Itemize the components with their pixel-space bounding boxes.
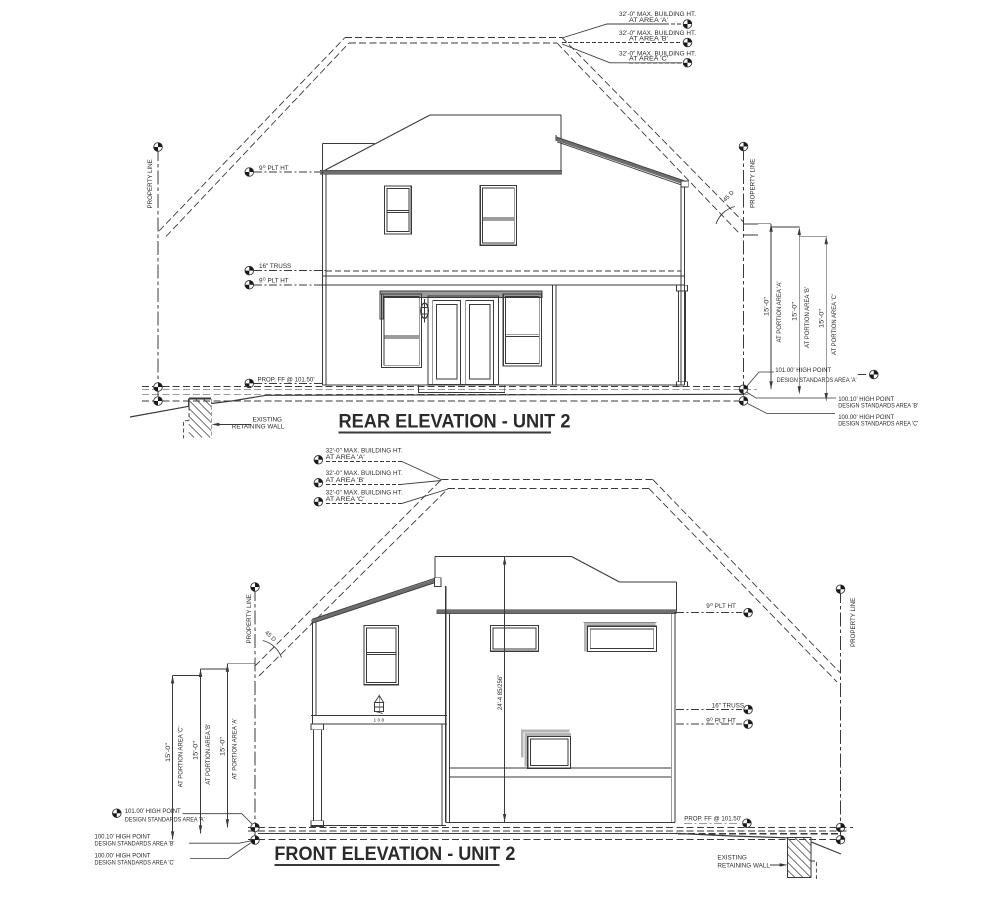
svg-text:DESIGN STANDARDS AREA 'B': DESIGN STANDARDS AREA 'B' (838, 402, 918, 409)
svg-text:RETAINING WALL: RETAINING WALL (717, 863, 770, 870)
svg-text:PLT HT: PLT HT (268, 278, 289, 285)
svg-text:AT AREA 'C': AT AREA 'C' (326, 496, 365, 503)
svg-text:16" TRUSS: 16" TRUSS (712, 703, 744, 710)
svg-text:AT AREA 'B': AT AREA 'B' (629, 35, 668, 42)
svg-text:15'-0": 15'-0" (818, 309, 825, 328)
svg-text:AT PORTION AREA 'B': AT PORTION AREA 'B' (205, 724, 212, 785)
svg-text:DESIGN STANDARDS AREA 'A': DESIGN STANDARDS AREA 'A' (777, 377, 857, 384)
svg-text:101.00' HIGH POINT: 101.00' HIGH POINT (125, 808, 181, 815)
svg-text:AT PORTION AREA 'C': AT PORTION AREA 'C' (831, 294, 838, 355)
svg-text:AT PORTION AREA 'A': AT PORTION AREA 'A' (776, 282, 783, 343)
svg-text:PLT HT: PLT HT (268, 165, 289, 172)
svg-text:15'-0": 15'-0" (792, 302, 799, 321)
svg-text:0: 0 (710, 716, 713, 721)
svg-text:AT AREA 'A': AT AREA 'A' (326, 454, 365, 461)
svg-text:1 0 8: 1 0 8 (374, 717, 385, 723)
svg-text:REAR ELEVATION - UNIT 2: REAR ELEVATION - UNIT 2 (339, 411, 571, 432)
svg-text:DESIGN STANDARDS AREA 'C': DESIGN STANDARDS AREA 'C' (95, 859, 175, 866)
svg-text:16" TRUSS: 16" TRUSS (259, 263, 291, 270)
svg-text:AT AREA 'A': AT AREA 'A' (629, 17, 668, 24)
svg-text:DESIGN STANDARDS AREA 'A': DESIGN STANDARDS AREA 'A' (125, 817, 205, 824)
svg-text:0: 0 (710, 602, 713, 607)
svg-text:AT PORTION AREA 'B': AT PORTION AREA 'B' (804, 287, 811, 348)
svg-text:24'-4 85/256": 24'-4 85/256" (498, 675, 504, 710)
svg-text:PROP. FF @ 101.50': PROP. FF @ 101.50' (684, 815, 741, 822)
svg-text:EXISTING: EXISTING (253, 416, 282, 423)
svg-text:0: 0 (263, 277, 266, 282)
svg-text:PROPERTY LINE: PROPERTY LINE (750, 159, 757, 208)
svg-text:DESIGN STANDARDS AREA 'C': DESIGN STANDARDS AREA 'C' (838, 421, 918, 428)
svg-text:101.00' HIGH POINT: 101.00' HIGH POINT (775, 367, 831, 374)
svg-text:PLT HT: PLT HT (715, 603, 736, 610)
svg-text:AT PORTION AREA 'C': AT PORTION AREA 'C' (177, 726, 184, 787)
svg-text:PROP. FF @ 101.50': PROP. FF @ 101.50' (258, 376, 315, 383)
svg-text:15'-0": 15'-0" (220, 737, 227, 756)
svg-text:PLT HT: PLT HT (715, 717, 736, 724)
svg-text:15'-0": 15'-0" (193, 741, 200, 760)
svg-text:AT PORTION AREA 'A': AT PORTION AREA 'A' (231, 719, 238, 780)
svg-text:PROPERTY LINE: PROPERTY LINE (850, 598, 857, 647)
svg-text:DESIGN STANDARDS AREA 'B': DESIGN STANDARDS AREA 'B' (95, 840, 175, 847)
svg-text:AT AREA 'C': AT AREA 'C' (629, 56, 668, 63)
svg-text:15'-0": 15'-0" (763, 297, 770, 316)
svg-text:EXISTING: EXISTING (717, 854, 746, 861)
svg-text:0: 0 (263, 164, 266, 169)
svg-text:15'-0": 15'-0" (165, 743, 172, 762)
svg-text:FRONT ELEVATION - UNIT 2: FRONT ELEVATION - UNIT 2 (274, 844, 515, 865)
svg-text:PROPERTY LINE: PROPERTY LINE (147, 159, 154, 208)
svg-text:PROPERTY LINE: PROPERTY LINE (246, 594, 253, 643)
svg-text:AT AREA 'B': AT AREA 'B' (326, 477, 365, 484)
